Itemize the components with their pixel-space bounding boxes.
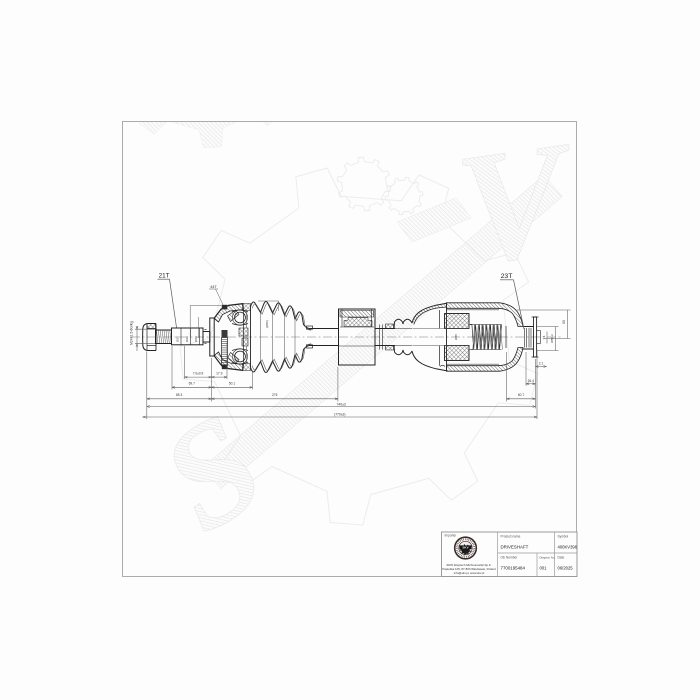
svg-text:7.1: 7.1 xyxy=(542,335,546,340)
svg-text:Product name: Product name xyxy=(501,535,521,539)
svg-text:275: 275 xyxy=(272,393,278,397)
svg-text:Date: Date xyxy=(558,556,565,560)
svg-text:2.1: 2.1 xyxy=(539,361,544,365)
svg-text:OE Number: OE Number xyxy=(501,556,519,560)
svg-text:69.7: 69.7 xyxy=(189,382,195,386)
svg-text:06/2025: 06/2025 xyxy=(558,566,574,571)
svg-text:85.3: 85.3 xyxy=(176,393,182,397)
svg-text:740±3: 740±3 xyxy=(337,402,346,406)
svg-text:400KV396: 400KV396 xyxy=(558,545,578,550)
svg-text:80: 80 xyxy=(562,320,566,324)
svg-text:7700195484: 7700195484 xyxy=(501,566,526,571)
svg-text:Symbol: Symbol xyxy=(558,535,569,539)
svg-text:7.0±0.9: 7.0±0.9 xyxy=(193,371,204,375)
svg-text:M24X1.5-6G/Kg: M24X1.5-6G/Kg xyxy=(129,321,133,345)
svg-text:SKV: SKV xyxy=(462,546,468,550)
svg-text:60.7: 60.7 xyxy=(518,393,524,397)
svg-text:Ø56.3: Ø56.3 xyxy=(550,334,554,343)
svg-text:001: 001 xyxy=(540,566,548,571)
svg-text:Importer: Importer xyxy=(445,534,458,538)
svg-text:info@skv.pl, www.skv.pl: info@skv.pl, www.skv.pl xyxy=(454,571,485,575)
svg-text:50.1: 50.1 xyxy=(229,382,235,386)
svg-text:Ø62: Ø62 xyxy=(194,336,198,342)
svg-text:44T: 44T xyxy=(210,285,217,289)
svg-text:Diagram No:: Diagram No: xyxy=(540,556,556,560)
svg-text:Ø88: Ø88 xyxy=(454,334,458,340)
svg-text:Ø21: Ø21 xyxy=(185,336,189,342)
svg-text:26.4: 26.4 xyxy=(528,379,534,383)
svg-text:(Ø80): (Ø80) xyxy=(265,320,269,328)
svg-text:Ø25: Ø25 xyxy=(175,336,179,342)
svg-text:(770±3): (770±3) xyxy=(334,412,345,416)
svg-text:23T: 23T xyxy=(501,273,513,280)
svg-text:21T: 21T xyxy=(159,272,170,279)
svg-text:DRIVESHAFT: DRIVESHAFT xyxy=(501,545,529,550)
svg-text:17.9: 17.9 xyxy=(216,371,222,375)
